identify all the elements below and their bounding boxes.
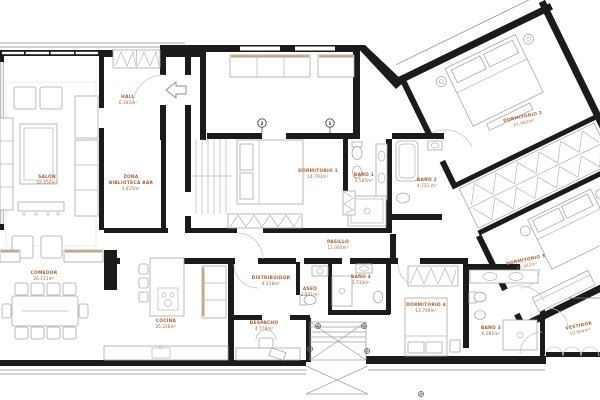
- bedroom1-furniture: [192, 139, 303, 228]
- svg-text:4.158m²: 4.158m²: [262, 281, 281, 286]
- living-room-furniture: [0, 82, 98, 258]
- entry-door-arc: [133, 75, 163, 105]
- bath1-fixtures: [343, 142, 387, 226]
- svg-text:2.501m²: 2.501m²: [301, 292, 320, 297]
- label-comedor: COMEDOR 26.111m²: [31, 270, 58, 281]
- svg-text:ZONA: ZONA: [124, 174, 139, 180]
- label-zona-biblioteca: ZONA BIBLIOTECA BAR 4.815m²: [109, 174, 154, 191]
- svg-text:14.793m²: 14.793m²: [307, 174, 328, 179]
- marker-2: 2: [258, 119, 266, 133]
- label-vestidor: VESTIDOR 10.004m²: [565, 320, 594, 336]
- label-hall: HALL 6.305m²: [119, 94, 138, 105]
- bath2-fixtures: [396, 141, 442, 203]
- stair-void: [306, 322, 368, 394]
- svg-text:12.065m²: 12.065m²: [327, 245, 348, 250]
- label-bano1: BAÑO 1 5.585m²: [354, 171, 374, 183]
- label-salon: SALÓN 42.456m²: [36, 173, 57, 185]
- label-bano3: BAÑO 3 6.081m²: [481, 324, 501, 336]
- aseo-fixtures: [300, 266, 328, 305]
- bath3-fixtures: [469, 270, 538, 350]
- svg-text:BAÑO 1: BAÑO 1: [354, 171, 374, 178]
- svg-text:5.585m²: 5.585m²: [355, 178, 374, 183]
- svg-text:13.709m²: 13.709m²: [415, 308, 436, 313]
- svg-text:26.111m²: 26.111m²: [33, 276, 54, 281]
- svg-text:BAÑO 2: BAÑO 2: [417, 176, 437, 183]
- office-furniture: [236, 330, 300, 360]
- entry-arrow-icon: [166, 82, 186, 98]
- hall-wardrobe: [113, 50, 160, 68]
- svg-text:42.456m²: 42.456m²: [36, 180, 57, 185]
- svg-text:4.731 m²: 4.731 m²: [417, 183, 437, 188]
- svg-text:BAÑO 3: BAÑO 3: [481, 324, 501, 331]
- top-wardrobes: [230, 55, 354, 77]
- svg-text:BAÑO 4: BAÑO 4: [351, 273, 371, 280]
- floor-plan: 2 1 HALL 6.305m² SALÓN 42.456m² ZONA BIB…: [0, 0, 600, 400]
- svg-text:6.305m²: 6.305m²: [119, 100, 138, 105]
- label-distribuidor: DISTRIBUIDOR 4.158m²: [252, 275, 291, 286]
- svg-text:SALÓN: SALÓN: [38, 173, 56, 180]
- label-aseo: ASEO 2.501m²: [301, 286, 320, 297]
- bedroom1-door-arc: [237, 233, 263, 259]
- label-pasillo: PASILLO 12.065m²: [327, 239, 349, 250]
- svg-text:4.815m²: 4.815m²: [122, 186, 141, 191]
- marker-1: 1: [326, 119, 334, 133]
- dining-furniture: [0, 250, 103, 339]
- label-dormitorio1: DORMITORIO 1 14.793m²: [298, 168, 338, 179]
- bath4-fixtures: [332, 264, 383, 306]
- label-cocina: COCINA 26.228m²: [155, 318, 176, 329]
- svg-text:6.081m²: 6.081m²: [482, 331, 501, 336]
- svg-text:2: 2: [260, 121, 263, 127]
- kitchen-furniture: [104, 258, 228, 360]
- svg-text:1.730m²: 1.730m²: [352, 280, 371, 285]
- label-despacho: DESPACHO 4.778m²: [250, 320, 279, 331]
- label-bano2: BAÑO 2 4.731 m²: [417, 176, 437, 188]
- label-bano4: BAÑO 4 1.730m²: [351, 273, 371, 285]
- svg-text:26.228m²: 26.228m²: [155, 324, 176, 329]
- svg-text:4.778m²: 4.778m²: [255, 326, 274, 331]
- svg-text:1: 1: [328, 121, 331, 127]
